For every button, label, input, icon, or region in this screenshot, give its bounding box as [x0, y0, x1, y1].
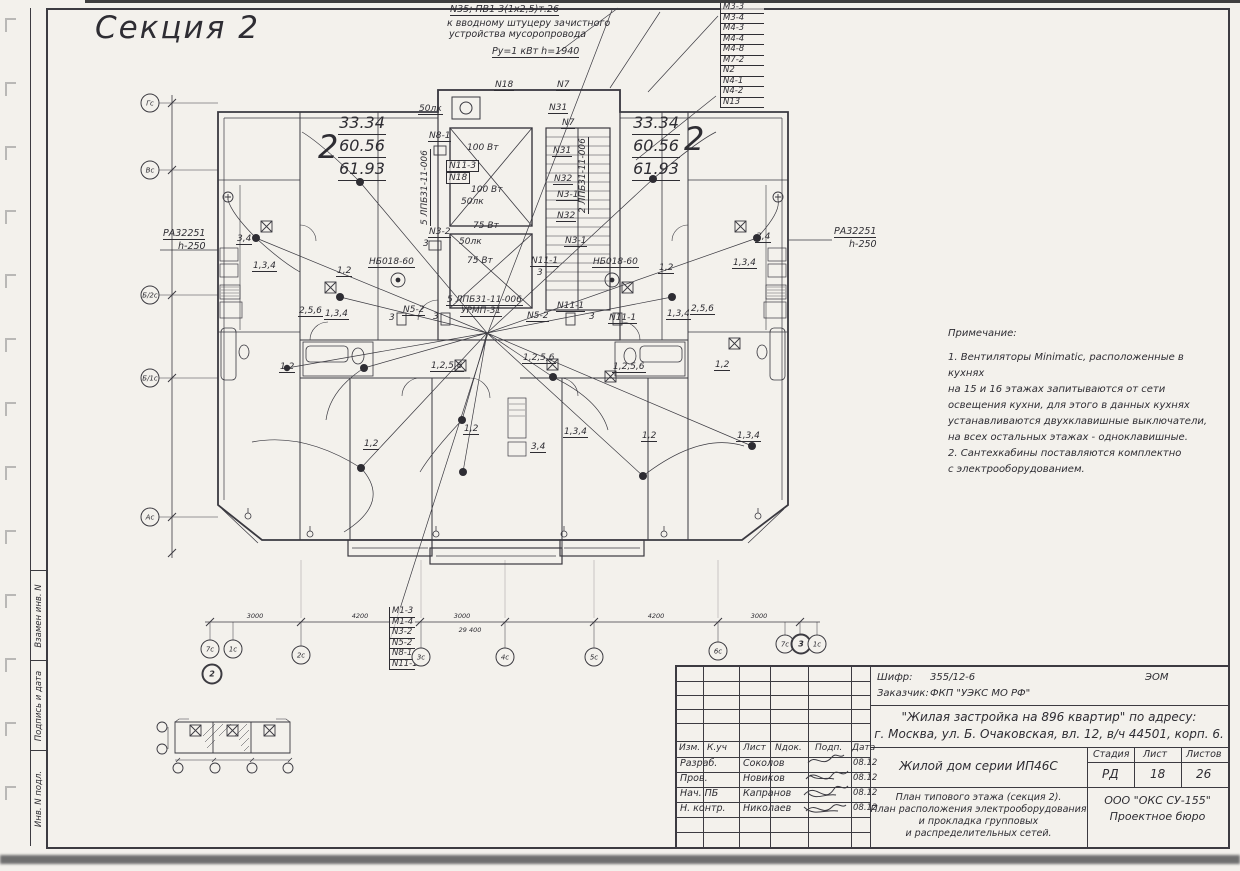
plan-label: 1,3,4: [563, 427, 588, 438]
signature-row: Пров. Новиков 08.12: [677, 772, 870, 787]
area-value: 33.34: [632, 112, 680, 135]
axis-marker: Вс: [141, 161, 160, 180]
sig-role: Н. контр.: [680, 803, 726, 814]
plan-label: 1,3,4: [736, 431, 761, 442]
circuit-tag: N11-1: [389, 660, 415, 671]
plan-label: 1,2,5,6: [430, 361, 464, 372]
plan-label: N31: [552, 146, 572, 157]
area-value: 61.93: [338, 158, 386, 181]
circuit-list-top-right: М3-3М3-4М4-3М4-4М4-8М7-2N2N4-1N4-2N13: [720, 3, 764, 108]
plan-label: 3,4: [530, 442, 546, 453]
building-series: Жилой дом серии ИП46С: [870, 759, 1087, 773]
plan-label: 50лк: [418, 104, 443, 115]
axis-marker: 1с: [224, 640, 243, 659]
notes-lines: 1. Вентиляторы Minimatic, расположенные …: [948, 350, 1216, 478]
description-line: План расположения электрооборудования: [870, 804, 1087, 816]
axis-marker: Б/2с: [141, 286, 160, 305]
sheet-label: Лист: [1143, 749, 1167, 760]
customer-value: ФКП "УЭКС МО РФ": [930, 688, 1030, 699]
description-line: и прокладка групповых: [870, 816, 1087, 828]
plan-label: 5 ЛПБ31-11-006: [446, 295, 523, 306]
sig-name: Николаев: [743, 803, 791, 814]
plan-label: N7: [556, 80, 570, 91]
annotation-power: Ру=1 кВт h=1940: [492, 46, 579, 58]
plan-label: 50лк: [460, 197, 485, 207]
signature-row: Н. контр. Николаев 08.12: [677, 802, 870, 817]
sig-header-cell: Лист: [743, 743, 766, 753]
plan-label: N18: [446, 172, 470, 184]
plan-label: N11-1: [530, 256, 559, 267]
panel-height-right: h-250: [849, 239, 877, 250]
note-line: на всех остальных этажах - одноклавишные…: [948, 430, 1216, 446]
circuit-tag: N3-2: [389, 628, 415, 639]
area-value: 61.93: [632, 158, 680, 181]
dimension-value: 4200: [352, 612, 369, 620]
plan-label: 3: [432, 312, 440, 322]
notes-block: Примечание: 1. Вентиляторы Minimatic, ра…: [948, 326, 1216, 478]
plan-label: 1,3,4: [732, 258, 757, 269]
axis-marker: Гс: [141, 94, 160, 113]
note-line: с электрооборудованием.: [948, 462, 1216, 478]
apartment-areas-left: 33.34 60.56 61.93: [338, 112, 386, 181]
sheets-total: 26: [1196, 767, 1211, 781]
plan-label: 1,2: [714, 360, 730, 371]
plan-label: 3: [388, 313, 396, 323]
dimension-value: 29 400: [459, 626, 482, 634]
stage-label: Стадия: [1093, 749, 1129, 760]
axis-marker: 1с: [808, 635, 827, 654]
apartment-number-right: 2: [684, 120, 704, 158]
dimension-value: 4200: [648, 612, 665, 620]
plan-label: 1,2: [279, 362, 295, 373]
plan-label: НБ018-60: [368, 257, 415, 268]
note-line: 2. Сантехкабины поставляются комплектно: [948, 446, 1216, 462]
plan-label: 3: [536, 268, 544, 278]
plan-label: 75 Вт: [466, 256, 494, 266]
plan-label: 5 ЛПБ31-11-006: [420, 149, 431, 226]
axis-marker: 3с: [412, 648, 431, 667]
plan-label: N5-2: [526, 311, 549, 322]
drawing-sheet: Взамен инв. N Подпись и дата Инв. N подл…: [0, 0, 1240, 871]
note-line: на 15 и 16 этажах запитываются от сети: [948, 382, 1216, 398]
organization-line: Проектное бюро: [1087, 809, 1228, 825]
plan-label: 1,3,4: [666, 309, 691, 320]
sig-role: Разраб.: [680, 758, 717, 769]
plan-label: 1,2: [463, 424, 479, 435]
sig-role: Нач. ПБ: [680, 788, 718, 799]
panel-height-left: h-250: [178, 241, 206, 252]
plan-label: 75 Вт: [472, 221, 500, 231]
axis-marker: 5с: [585, 648, 604, 667]
area-value: 33.34: [338, 112, 386, 135]
plan-label: 3,4: [755, 232, 771, 243]
signature-row: Разраб. Соколов 08.12: [677, 757, 870, 772]
organization: ООО "ОКС СУ-155"Проектное бюро: [1087, 793, 1228, 825]
code-label: Шифр:: [877, 672, 912, 683]
plan-label: N8-1: [428, 131, 451, 142]
code-value: 355/12-6: [930, 672, 975, 683]
plan-label: N3-1: [556, 190, 579, 201]
axis-marker: 6с: [709, 642, 728, 661]
plan-label: N11-1: [608, 313, 637, 324]
note-line: устанавливаются двухклавишные выключател…: [948, 414, 1216, 430]
sig-name: Новиков: [743, 773, 785, 784]
plan-label: N32: [553, 174, 573, 185]
plan-label: 1,2: [641, 431, 657, 442]
annotation-line3: устройства мусоропровода: [449, 29, 586, 40]
plan-label: 100 Вт: [470, 185, 503, 195]
title-block: Шифр: 355/12-6 ЭОМ Заказчик: ФКП "УЭКС М…: [675, 665, 1230, 849]
axis-marker: 2: [202, 664, 223, 685]
plan-label: N5-2: [402, 305, 425, 316]
area-value: 60.56: [632, 135, 680, 158]
circuit-tag: М1-3: [389, 607, 415, 618]
apartment-number-left: 2: [318, 128, 338, 166]
annotation-cable: N35; ПВ1 3(1х2,5)т.26: [450, 4, 559, 16]
plan-label: N18: [494, 80, 514, 91]
circuit-list-bottom: М1-3М1-4N3-2N5-2N8-1N11-1: [389, 607, 415, 670]
plan-label: 50лк: [458, 237, 483, 247]
stage-value: РД: [1102, 767, 1119, 781]
plan-label: N31: [548, 103, 568, 114]
circuit-tag: N2: [720, 66, 764, 77]
sig-name: Капранов: [743, 788, 791, 799]
axis-marker: 4с: [496, 648, 515, 667]
annotation-line2: к вводному штуцеру зачистного: [447, 18, 610, 29]
sheet-description: План типового этажа (секция 2).План расп…: [870, 792, 1087, 840]
description-line: План типового этажа (секция 2).: [870, 792, 1087, 804]
organization-line: ООО "ОКС СУ-155": [1087, 793, 1228, 809]
project-name: "Жилая застройка на 896 квартир" по адре…: [870, 710, 1228, 724]
plan-label: 1,2,5,6: [522, 353, 556, 364]
doc-type: ЭОМ: [1145, 672, 1168, 683]
dimension-value: 3000: [751, 612, 768, 620]
plan-label: 2,5,6: [298, 306, 323, 317]
sig-header: Изм.К.учЛистNдок.Подп.Дата: [677, 743, 870, 757]
plan-label: 3: [588, 312, 596, 322]
axis-marker: 2с: [292, 646, 311, 665]
plan-label: 1,2: [658, 263, 674, 274]
area-value: 60.56: [338, 135, 386, 158]
plan-label: 3: [422, 239, 430, 249]
apartment-areas-right: 33.34 60.56 61.93: [632, 112, 680, 181]
plan-label: 1,2,5,6: [612, 362, 646, 373]
plan-label: НБ018-60: [592, 257, 639, 268]
project-address: г. Москва, ул. Б. Очаковская, вл. 12, в/…: [870, 727, 1228, 741]
plan-label: N3-1: [564, 236, 587, 247]
sig-name: Соколов: [743, 758, 784, 769]
dimension-value: 3000: [454, 612, 471, 620]
customer-label: Заказчик:: [877, 688, 929, 699]
sig-header-cell: Изм.: [679, 743, 700, 753]
sig-header-cell: Дата: [852, 743, 875, 753]
note-line: 1. Вентиляторы Minimatic, расположенные …: [948, 350, 1216, 382]
sig-date: 08.12: [853, 773, 877, 783]
plan-label: 1,2: [336, 266, 352, 277]
circuit-tag: М3-3: [720, 3, 764, 14]
circuit-tag: М4-3: [720, 24, 764, 35]
plan-label: 2 ЛПБ31-11-006: [578, 137, 589, 214]
sig-role: Пров.: [680, 773, 708, 784]
plan-label: 1,2: [363, 439, 379, 450]
signature-row: Нач. ПБ Капранов 08.12: [677, 787, 870, 802]
panel-label-right: РА32251: [834, 226, 876, 238]
signature-rows: Разраб. Соколов 08.12 Пров. Новиков 08.1…: [677, 757, 870, 817]
plan-label: 1,3,4: [252, 261, 277, 272]
circuit-tag: М4-8: [720, 45, 764, 56]
panel-label-left: РА32251: [163, 228, 205, 240]
plan-label: N32: [556, 211, 576, 222]
sig-header-cell: Nдок.: [775, 743, 802, 753]
plan-label: N7: [561, 118, 575, 129]
plan-label: 1,3,4: [324, 309, 349, 320]
sig-header-cell: Подп.: [815, 743, 842, 753]
description-line: и распределительных сетей.: [870, 828, 1087, 840]
plan-label: УРМП-31: [460, 306, 502, 317]
plan-label: 100 Вт: [466, 143, 499, 153]
axis-marker: Ас: [141, 508, 160, 527]
axis-marker: 7с: [201, 640, 220, 659]
notes-title: Примечание:: [948, 326, 1216, 342]
sheet-number: 18: [1150, 767, 1165, 781]
plan-label: 3,4: [236, 234, 252, 245]
plan-label: N3-2: [428, 227, 451, 238]
circuit-tag: N4-2: [720, 87, 764, 98]
plan-label: N11-1: [556, 301, 585, 312]
note-line: освещения кухни, для этого в данных кухн…: [948, 398, 1216, 414]
sheets-label: Листов: [1186, 749, 1222, 760]
plan-label: N11-3: [446, 160, 479, 172]
axis-marker: Б/1с: [141, 369, 160, 388]
dimension-value: 3000: [247, 612, 264, 620]
sig-header-cell: К.уч: [707, 743, 727, 753]
circuit-tag: N13: [720, 98, 764, 109]
plan-label: 2,5,6: [690, 304, 715, 315]
